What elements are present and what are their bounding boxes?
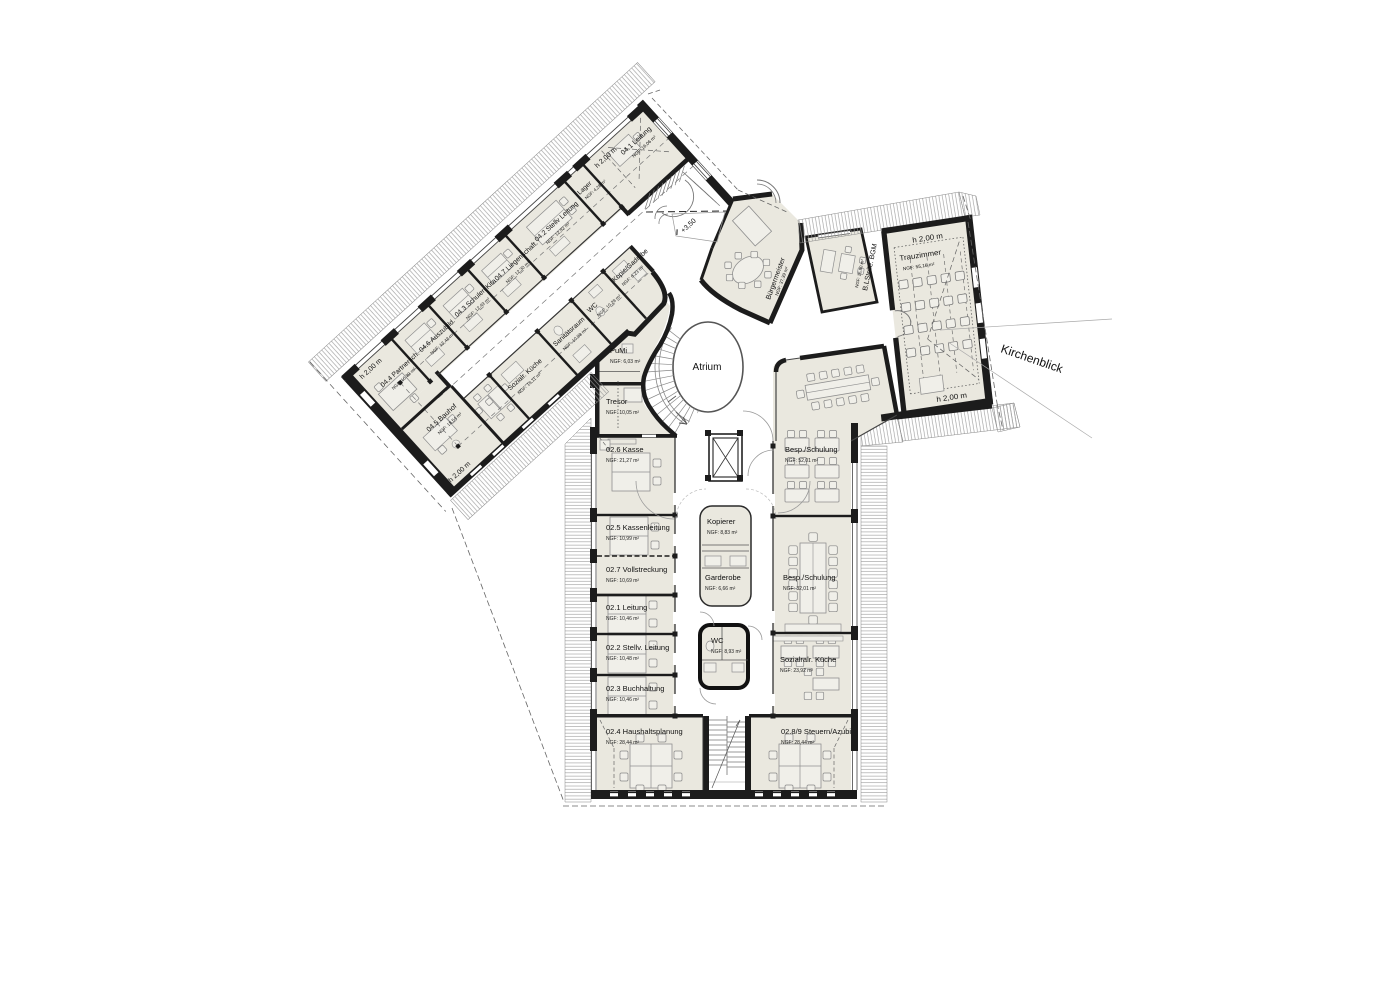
svg-text:Besp./Schulung: Besp./Schulung xyxy=(785,445,838,454)
svg-text:NGF: 21,27 m²: NGF: 21,27 m² xyxy=(606,458,639,464)
svg-text:NGF: 6,66 m²: NGF: 6,66 m² xyxy=(705,586,736,592)
svg-text:NGF: 8,83 m²: NGF: 8,83 m² xyxy=(707,530,738,536)
svg-text:NGF: 10,46 m²: NGF: 10,46 m² xyxy=(606,697,639,703)
svg-text:NGF: 52,01 m²: NGF: 52,01 m² xyxy=(785,458,818,464)
svg-text:NGF: 10,69 m²: NGF: 10,69 m² xyxy=(606,578,639,584)
svg-text:Garderobe: Garderobe xyxy=(705,573,741,582)
svg-text:02.1 Leitung: 02.1 Leitung xyxy=(606,603,647,612)
svg-text:Tresor: Tresor xyxy=(606,397,628,406)
svg-text:NGF: 10,99 m²: NGF: 10,99 m² xyxy=(606,536,639,542)
svg-text:NGF: 8,93 m²: NGF: 8,93 m² xyxy=(711,649,742,655)
svg-text:NGF: 10,46 m²: NGF: 10,46 m² xyxy=(606,616,639,622)
svg-text:NGF: 6,03 m²: NGF: 6,03 m² xyxy=(610,359,641,365)
svg-text:02.5 Kassenleitung: 02.5 Kassenleitung xyxy=(606,523,670,532)
svg-text:02.6 Kasse: 02.6 Kasse xyxy=(606,445,644,454)
svg-text:NGF: 32,01 m²: NGF: 32,01 m² xyxy=(783,586,816,592)
svg-text:NGF: 10,05 m²: NGF: 10,05 m² xyxy=(606,410,639,416)
svg-text:02.7 Vollstreckung: 02.7 Vollstreckung xyxy=(606,565,667,574)
svg-text:NGF: 28,44 m²: NGF: 28,44 m² xyxy=(781,740,814,746)
svg-text:NGF: 23,92 m²: NGF: 23,92 m² xyxy=(780,668,813,674)
svg-text:Kopierer: Kopierer xyxy=(707,517,736,526)
svg-text:02.4 Haushaltsplanung: 02.4 Haushaltsplanung xyxy=(606,727,683,736)
svg-text:Besp./Schulung: Besp./Schulung xyxy=(783,573,836,582)
svg-text:02.2 Stellv. Leitung: 02.2 Stellv. Leitung xyxy=(606,643,669,652)
svg-text:Sozialralr. Küche: Sozialralr. Küche xyxy=(780,655,836,664)
svg-text:Atrium: Atrium xyxy=(693,362,722,373)
svg-text:PuMi: PuMi xyxy=(610,346,627,355)
svg-text:NGF: 28,44 m²: NGF: 28,44 m² xyxy=(606,740,639,746)
svg-text:WC: WC xyxy=(711,636,724,645)
svg-text:NGF: 10,48 m²: NGF: 10,48 m² xyxy=(606,656,639,662)
svg-text:02.3 Buchhaltung: 02.3 Buchhaltung xyxy=(606,684,664,693)
